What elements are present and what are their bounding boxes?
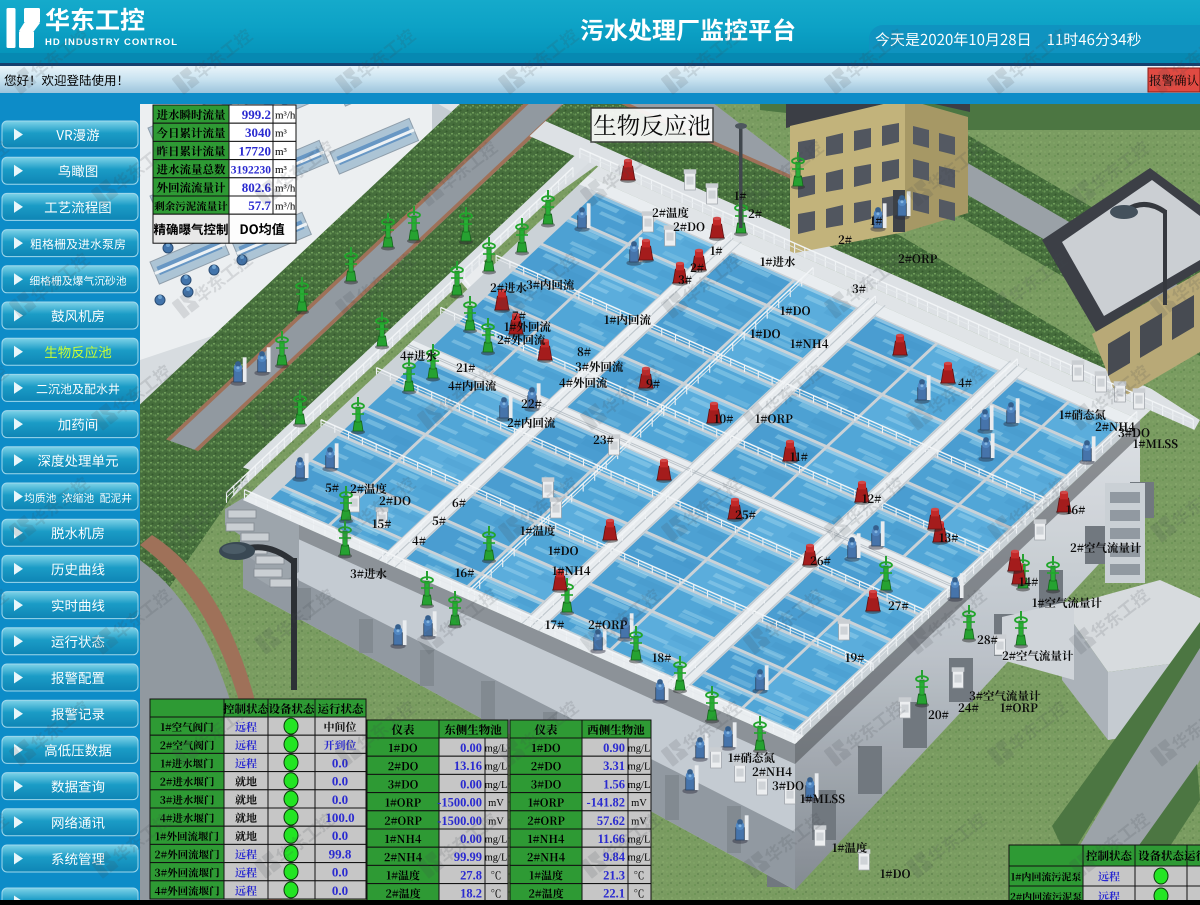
svg-text:1.56: 1.56 bbox=[603, 777, 625, 791]
svg-text:mg/L: mg/L bbox=[628, 780, 651, 791]
svg-text:mg/L: mg/L bbox=[628, 744, 651, 755]
svg-text:57.62: 57.62 bbox=[597, 814, 625, 828]
svg-text:0.00: 0.00 bbox=[460, 741, 482, 755]
svg-text:27.8: 27.8 bbox=[460, 868, 482, 882]
svg-text:21.3: 21.3 bbox=[603, 868, 625, 882]
svg-text:0.90: 0.90 bbox=[603, 741, 625, 755]
svg-text:mV: mV bbox=[631, 798, 647, 809]
svg-text:3192230: 3192230 bbox=[231, 165, 272, 177]
svg-text:m³/h: m³/h bbox=[275, 110, 296, 122]
svg-text:-1500.00: -1500.00 bbox=[437, 796, 482, 810]
svg-text:m³: m³ bbox=[275, 128, 288, 140]
svg-text:m³/h: m³/h bbox=[275, 201, 296, 213]
svg-text:18.2: 18.2 bbox=[460, 887, 482, 900]
svg-text:mg/L: mg/L bbox=[485, 835, 508, 846]
svg-text:17720: 17720 bbox=[239, 143, 272, 158]
svg-text:0.0: 0.0 bbox=[332, 792, 348, 807]
svg-text:mg/L: mg/L bbox=[485, 853, 508, 864]
svg-text:99.99: 99.99 bbox=[454, 850, 482, 864]
svg-text:3.31: 3.31 bbox=[603, 759, 625, 773]
svg-text:0.0: 0.0 bbox=[332, 883, 348, 898]
svg-text:-141.82: -141.82 bbox=[586, 796, 625, 810]
svg-text:mg/L: mg/L bbox=[628, 853, 651, 864]
svg-text:99.8: 99.8 bbox=[329, 846, 352, 861]
svg-text:mg/L: mg/L bbox=[485, 780, 508, 791]
svg-text:13.16: 13.16 bbox=[454, 759, 482, 773]
svg-text:3040: 3040 bbox=[245, 125, 271, 140]
svg-text:m³: m³ bbox=[275, 146, 288, 158]
svg-text:mV: mV bbox=[488, 798, 504, 809]
svg-text:22.1: 22.1 bbox=[603, 887, 625, 900]
svg-text:0.0: 0.0 bbox=[332, 774, 348, 789]
svg-text:0.0: 0.0 bbox=[332, 828, 348, 843]
svg-text:mg/L: mg/L bbox=[485, 762, 508, 773]
svg-text:0.0: 0.0 bbox=[332, 865, 348, 880]
svg-text:0.00: 0.00 bbox=[460, 777, 482, 791]
svg-text:mg/L: mg/L bbox=[628, 762, 651, 773]
svg-text:999.2: 999.2 bbox=[242, 107, 271, 122]
